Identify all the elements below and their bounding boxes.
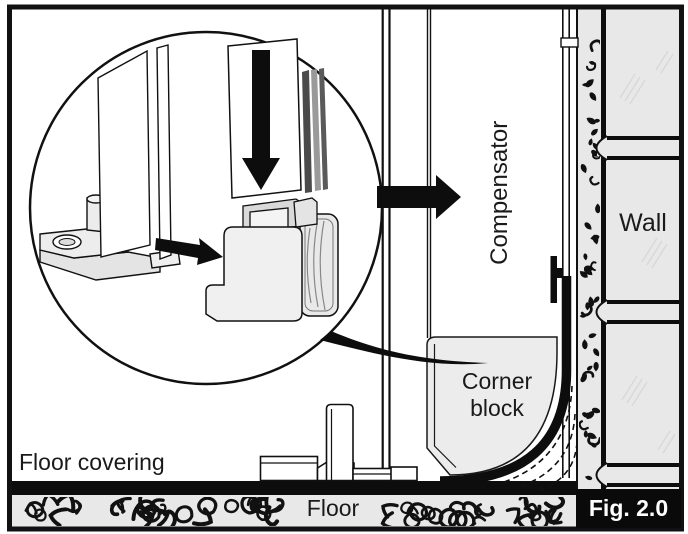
profile-fixing-tick [561, 38, 578, 47]
floor-rail-section [261, 405, 418, 481]
corner-block-label: Corner block [437, 368, 557, 422]
fig-caption-box: Fig. 2.0 [576, 489, 681, 528]
compensator-profile-line [428, 9, 431, 338]
fig-caption: Fig. 2.0 [589, 495, 668, 522]
floor-label: Floor [283, 495, 383, 521]
profile-clip [551, 256, 558, 303]
compensator-label: Compensator [486, 83, 514, 303]
installation-figure: Compensator Wall Corner block Floor cove… [0, 0, 688, 534]
floor-covering-label: Floor covering [19, 449, 165, 475]
detail-glass-sheets [98, 45, 171, 259]
detail-circle [30, 32, 382, 384]
wall-blocks [597, 9, 682, 490]
plaster-layer [577, 9, 602, 490]
floor-covering-bar [12, 481, 576, 495]
mortar-joint [597, 300, 682, 324]
wall-label: Wall [606, 209, 680, 238]
mortar-joint [597, 136, 682, 160]
mortar-joint [597, 463, 682, 487]
glass-panel-line [383, 9, 390, 472]
